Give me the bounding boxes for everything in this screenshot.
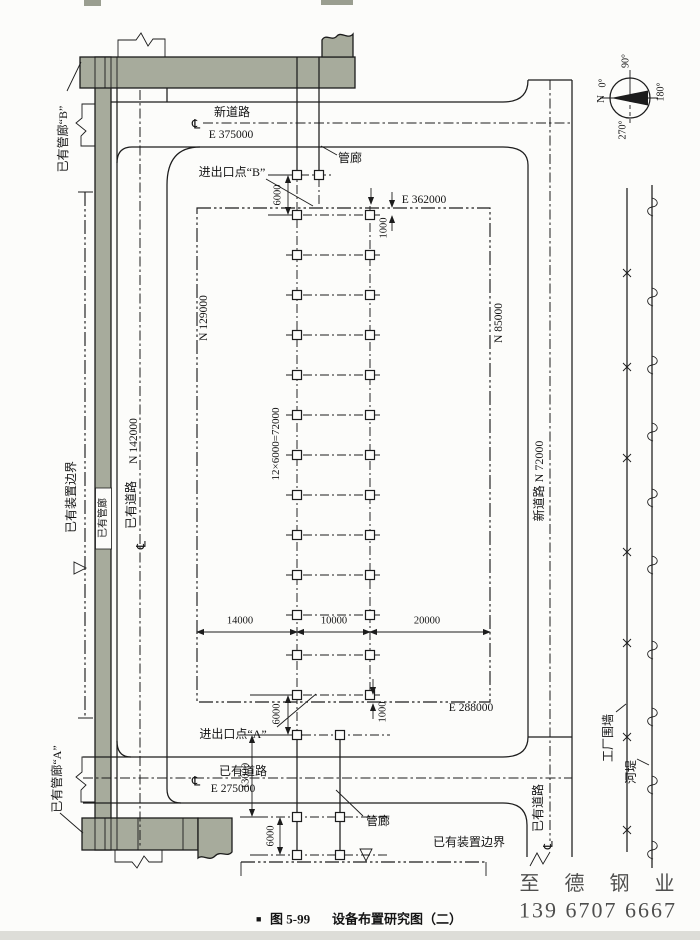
watermark-line1: 至 德 钢 业 — [520, 872, 685, 895]
dim-bot-13000-text: 13000 — [241, 763, 252, 789]
dim-10000-text: 10000 — [321, 616, 347, 627]
dim-bot-1000-text: 1000 — [378, 702, 389, 723]
n85000-label: N 85000 — [493, 303, 505, 343]
n142000-label: N 142000 — [128, 418, 140, 464]
column-marker — [366, 291, 375, 300]
column-marker — [293, 813, 302, 822]
figure-caption: ■ 图 5-99 设备布置研究图（二） — [256, 912, 462, 927]
compass-180-label: 180° — [656, 83, 667, 102]
road-top-name-label: 新道路 — [214, 104, 250, 119]
column-marker — [366, 611, 375, 620]
dim-bay-text: 12×6000=72000 — [270, 407, 282, 480]
compass-90-label: 90° — [621, 54, 632, 68]
column-marker — [293, 571, 302, 580]
scan-edge — [0, 931, 700, 940]
e288000-label: E 288000 — [449, 702, 494, 714]
column-marker — [293, 451, 302, 460]
column-marker — [293, 611, 302, 620]
column-marker — [293, 531, 302, 540]
entry-point-a-label: 进出口点“A” — [199, 727, 266, 741]
column-marker — [293, 211, 302, 220]
caption-title: 设备布置研究图（二） — [332, 912, 462, 927]
column-marker — [366, 571, 375, 580]
dim-top-6000-text: 6000 — [273, 185, 284, 206]
column-marker — [366, 331, 375, 340]
column-marker — [366, 411, 375, 420]
dim-bot-6000b-text: 6000 — [266, 826, 277, 847]
corridor-a-stub — [198, 818, 232, 858]
column-marker — [336, 731, 345, 740]
centerline-symbol-bottom: ℄ — [191, 774, 201, 789]
column-marker — [366, 211, 375, 220]
column-marker — [366, 651, 375, 660]
column-marker — [293, 731, 302, 740]
entry-point-b-label: 进出口点“B” — [199, 165, 266, 179]
column-marker — [366, 371, 375, 380]
watermark-line2: 139 6707 6667 — [519, 898, 677, 923]
column-marker — [366, 451, 375, 460]
rack-bottom-label: 管廊 — [366, 813, 390, 828]
corridor-a-label: 已有管廊“A” — [49, 745, 64, 812]
centerline-symbol-se: ℄ — [541, 840, 556, 850]
column-marker — [366, 491, 375, 500]
plot-plan-drawing: N 0° 90° 180° 270° 新道路 E 375000 ℄ 管廊 进出口… — [0, 0, 700, 940]
caption-bullet-icon: ■ — [256, 914, 261, 924]
factory-wall-label: 工厂围墙 — [601, 714, 615, 762]
river-label: 河堤 — [624, 760, 638, 784]
column-marker — [293, 491, 302, 500]
watermark: 至 德 钢 业 139 6707 6667 — [519, 872, 685, 923]
column-marker — [293, 251, 302, 260]
dim-top-1000-text: 1000 — [379, 218, 390, 239]
road-left-name-label: 已有道路 — [123, 481, 138, 529]
compass-n-label: N — [595, 95, 607, 103]
existing-corridor-strip — [95, 57, 111, 850]
column-marker — [315, 171, 324, 180]
rack-top-label: 管廊 — [338, 150, 362, 165]
column-marker — [293, 371, 302, 380]
corridor-strip-label: 已有管廊 — [96, 498, 109, 538]
corridor-b-label: 已有管廊“B” — [55, 106, 70, 173]
road-se-name-label: 已有道路 — [530, 784, 545, 832]
column-marker — [366, 531, 375, 540]
column-marker — [293, 411, 302, 420]
dim-14000-text: 14000 — [227, 616, 253, 627]
drawing-sheet: N 0° 90° 180° 270° 新道路 E 375000 ℄ 管廊 进出口… — [0, 0, 700, 940]
dim-bot-6000a-text: 6000 — [272, 704, 283, 725]
centerline-symbol-top: ℄ — [191, 117, 201, 132]
e362000-label: E 362000 — [402, 194, 447, 206]
centerline-symbol-left: ℄ — [134, 540, 149, 550]
column-marker — [336, 851, 345, 860]
column-marker — [293, 691, 302, 700]
boundary-bottom-label: 已有装置边界 — [433, 835, 505, 849]
column-marker — [293, 651, 302, 660]
compass-270-label: 270° — [618, 121, 629, 140]
existing-corridor-b-bar — [80, 57, 355, 88]
column-marker — [366, 251, 375, 260]
column-marker — [293, 851, 302, 860]
column-marker — [293, 171, 302, 180]
column-marker — [336, 813, 345, 822]
column-marker — [293, 331, 302, 340]
scan-artifact — [84, 0, 101, 6]
column-marker — [293, 291, 302, 300]
dim-20000-text: 20000 — [414, 616, 440, 627]
road-right-name-label: 新道路 N 72000 — [531, 441, 546, 522]
caption-figure-number: 图 5-99 — [270, 912, 311, 927]
corridor-b-stub — [322, 34, 353, 57]
boundary-left-label: 已有装置边界 — [64, 461, 78, 533]
road-top-coord-label: E 375000 — [209, 129, 254, 141]
n129000-label: N 129000 — [198, 295, 210, 341]
compass-0-label: 0° — [598, 79, 609, 88]
scan-artifact — [321, 0, 353, 5]
